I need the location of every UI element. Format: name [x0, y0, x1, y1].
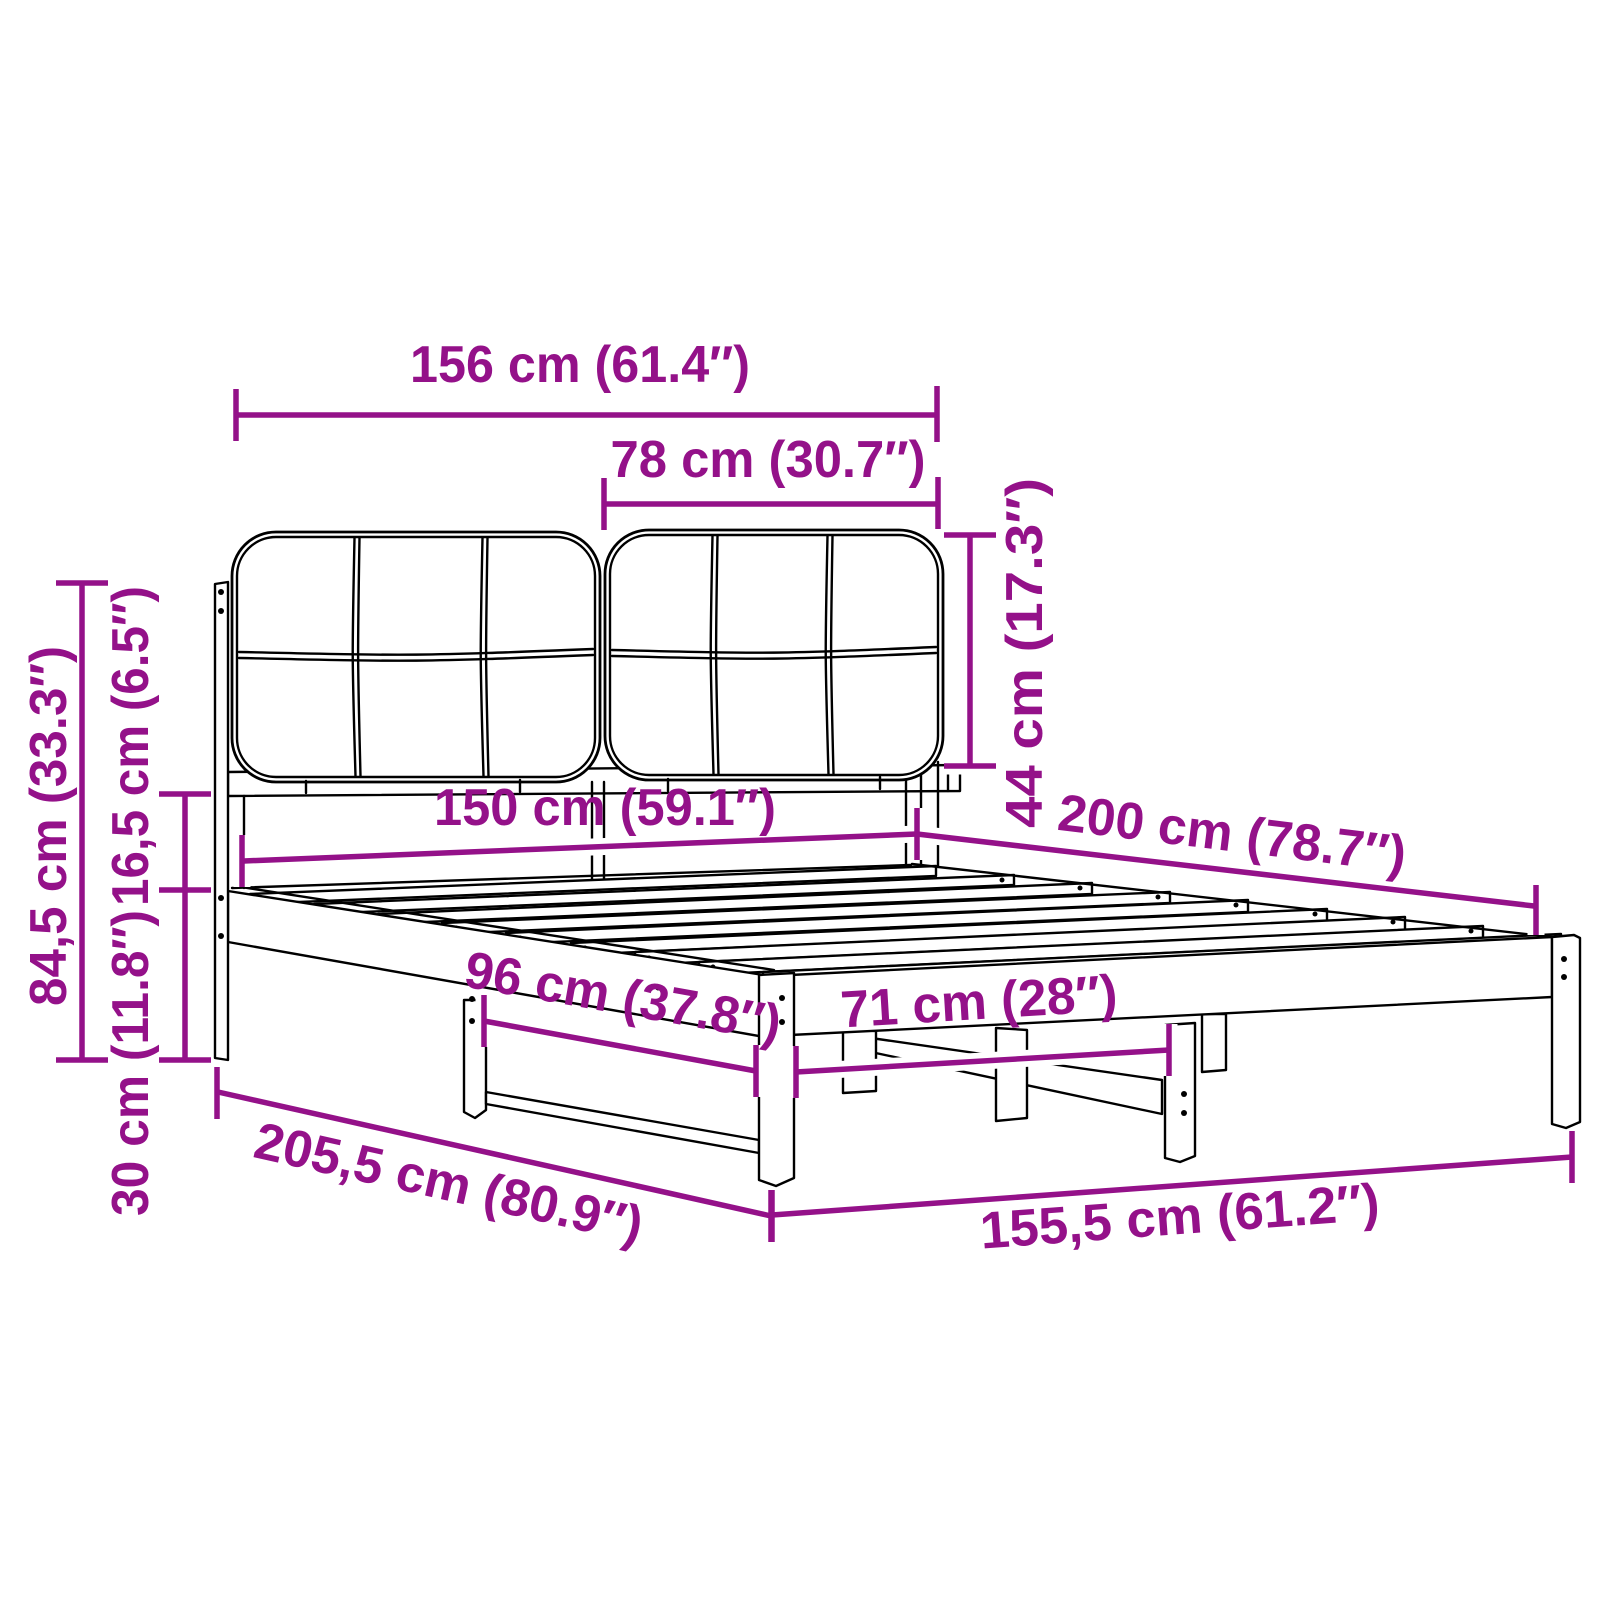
svg-text:156 cm (61.4″): 156 cm (61.4″)	[410, 336, 750, 394]
svg-text:16,5 cm (6.5″): 16,5 cm (6.5″)	[102, 586, 160, 906]
svg-text:84,5 cm (33.3″): 84,5 cm (33.3″)	[20, 646, 78, 1006]
svg-text:78 cm (30.7″): 78 cm (30.7″)	[611, 431, 926, 489]
svg-text:150 cm (59.1″): 150 cm (59.1″)	[434, 779, 776, 837]
svg-text:30 cm (11.8″): 30 cm (11.8″)	[102, 910, 160, 1216]
svg-text:44 cm (17.3″): 44 cm (17.3″)	[996, 478, 1054, 828]
